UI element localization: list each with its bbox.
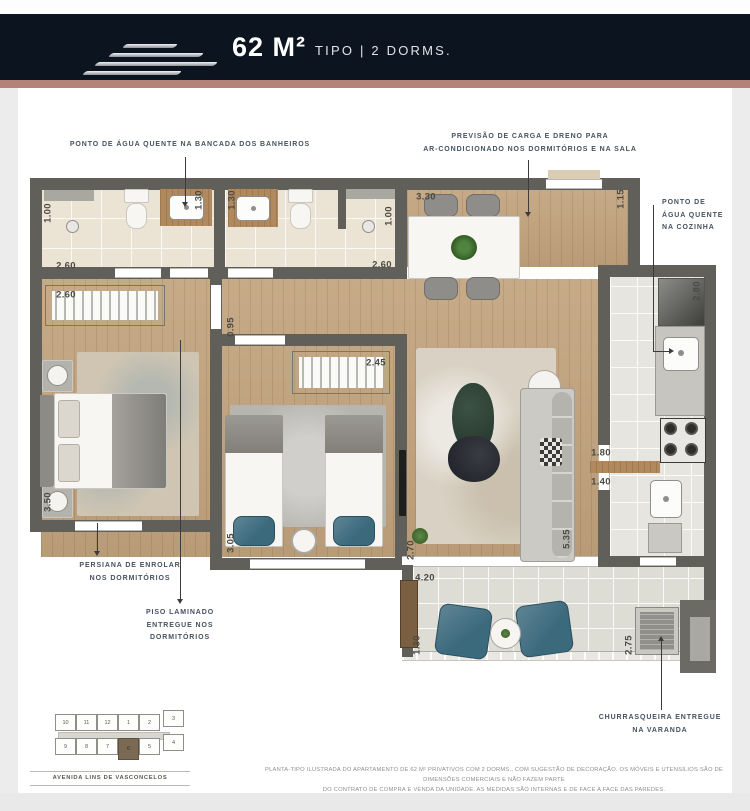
top-white-strip [0, 0, 750, 14]
stove-burner-icon [685, 443, 698, 456]
dining-chair [466, 194, 500, 217]
accent-divider [0, 80, 750, 88]
annotation-line: PONTO DE [662, 197, 742, 210]
site-unit-highlighted: 6 [118, 738, 139, 760]
dim-label: 2.45 [366, 358, 386, 369]
bath1-toilet-tank [124, 189, 149, 203]
tv-panel [399, 450, 406, 516]
leader-arrow [94, 551, 100, 556]
leader-arrow [177, 599, 183, 604]
logo-line-icon [122, 44, 178, 48]
plan-type-label: TIPO | 2 DORMS. [315, 37, 452, 58]
left-gutter [0, 88, 18, 811]
annotation-barbecue: CHURRASQUEIRA ENTREGUE NA VARANDA [570, 712, 750, 737]
leader-blinds [97, 523, 98, 552]
leader-barbecue [661, 641, 662, 710]
site-unit: 2 [139, 714, 160, 731]
dim-label: 1.30 [194, 190, 205, 210]
dim-label: 3.05 [226, 533, 237, 553]
washing-machine [648, 523, 682, 553]
master-pillow [58, 400, 80, 438]
street-line [30, 785, 190, 786]
dim-label: 2.60 [56, 261, 76, 272]
entry-door-opening [546, 179, 602, 189]
site-key-plan: 10 11 12 1 2 3 9 8 7 6 5 4 AVENIDA LINS … [30, 700, 190, 792]
annotation-line: DORMITÓRIOS [105, 632, 255, 645]
bottom-gutter [0, 793, 750, 811]
leader-arrow [669, 348, 674, 354]
site-unit: 7 [97, 738, 118, 755]
bath1-shower-glass [44, 190, 94, 201]
dining-chair [424, 277, 458, 300]
logo-line-icon [94, 62, 218, 66]
annotation-line: NA VARANDA [570, 725, 750, 738]
logo-line-icon [82, 71, 182, 75]
annotation-line: ÁGUA QUENTE [662, 210, 742, 223]
stove-burner-icon [664, 422, 677, 435]
stove-burner-icon [685, 422, 698, 435]
bath1-toilet [126, 203, 147, 229]
dim-label: 1.00 [384, 206, 395, 226]
dining-plant [451, 235, 477, 260]
bedroom2-window [250, 559, 365, 569]
site-unit: 4 [163, 734, 184, 751]
dim-label: 1.00 [43, 203, 54, 223]
wall-bath2-right [395, 178, 407, 267]
dim-label: 1.30 [412, 635, 423, 655]
varanda-plant [501, 629, 510, 638]
bedroom2-bed-blanket [325, 415, 383, 453]
annotation-ac: PREVISÃO DE CARGA E DRENO PARA AR-CONDIC… [390, 131, 670, 156]
disclaimer-line: PLANTA-TIPO ILUSTRADA DO APARTAMENTO DE … [255, 765, 733, 785]
master-pillow [58, 444, 80, 482]
dim-label: 3.50 [43, 492, 54, 512]
dim-label: 2.70 [406, 540, 417, 560]
site-unit: 3 [163, 710, 184, 727]
site-unit: 11 [76, 714, 97, 731]
dim-label: 2.60 [56, 290, 76, 301]
leader-hot-water-bath [185, 157, 186, 203]
site-unit: 8 [76, 738, 97, 755]
dim-label: 1.30 [227, 190, 238, 210]
wall-kitchen-divider [598, 277, 610, 557]
wall-kitchen-top [598, 265, 716, 277]
dim-label: 4.20 [415, 573, 435, 584]
master-bed-blanket [112, 394, 166, 488]
leader-arrow [182, 202, 188, 207]
dim-label: 1.80 [591, 448, 611, 459]
bedroom2-foot-pouf [233, 516, 275, 546]
master-bed-headboard [40, 395, 54, 487]
annotation-hot-water-kitchen: PONTO DE ÁGUA QUENTE NA COZINHA [662, 197, 742, 235]
dim-label: 5.35 [562, 529, 573, 549]
bath2-faucet [251, 206, 256, 211]
pass-through-counter [590, 461, 660, 473]
bath2-toilet-tank [288, 189, 313, 203]
wall-dining-right [628, 178, 640, 277]
barbecue-grill [636, 608, 678, 654]
bedroom2-foot-pouf [333, 516, 375, 546]
dim-label: 0.95 [226, 317, 237, 337]
plan-area-value: 62 M² [232, 32, 306, 63]
site-unit: 9 [55, 738, 76, 755]
laundry-faucet [663, 496, 669, 502]
bath2-door-opening [228, 268, 273, 278]
wall-baths-bottom [30, 267, 407, 279]
annotation-line: PISO LAMINADO [105, 607, 255, 620]
wall-bath-divider [214, 178, 225, 267]
disclaimer: PLANTA-TIPO ILUSTRADA DO APARTAMENTO DE … [255, 765, 733, 795]
master-lamp-icon [47, 365, 68, 386]
bath1-shower-icon [66, 220, 79, 233]
site-unit: 12 [97, 714, 118, 731]
logo-line-icon [108, 53, 204, 57]
wall-shower-stub [338, 183, 346, 229]
bath2-shower-glass [346, 189, 395, 199]
leader-ac [528, 160, 529, 213]
entry-doormat [548, 170, 600, 179]
dim-label: 2.75 [624, 635, 635, 655]
annotation-hot-water-bath: PONTO DE ÁGUA QUENTE NA BANCADA DOS BANH… [50, 139, 330, 152]
site-unit: 1 [118, 714, 139, 731]
leader-arrow [658, 636, 664, 641]
kitchen-stove [660, 418, 706, 463]
annotation-line: PERSIANA DE ENROLAR [40, 560, 220, 573]
leader-hot-water-kitchen-h [653, 351, 670, 352]
annotation-line: CHURRASQUEIRA ENTREGUE [570, 712, 750, 725]
stove-burner-icon [664, 443, 677, 456]
dining-chair [466, 277, 500, 300]
service-door-opening [640, 557, 676, 566]
master-window [75, 521, 142, 531]
service-shaft-inner [690, 617, 710, 661]
street-line [30, 771, 190, 772]
kitchen-faucet [678, 350, 684, 356]
dim-label: 2.80 [692, 281, 703, 301]
annotation-line: NA COZINHA [662, 222, 742, 235]
coffee-table-dark [448, 436, 500, 482]
annotation-blinds: PERSIANA DE ENROLAR NOS DORMITÓRIOS [40, 560, 220, 585]
street-label: AVENIDA LINS DE VASCONCELOS [30, 775, 190, 781]
annotation-line: ENTREGUE NOS [105, 620, 255, 633]
dim-label: 1.15 [616, 189, 627, 209]
leader-hot-water-kitchen-v [653, 205, 654, 352]
bath2-toilet [290, 203, 311, 229]
annotation-line: PONTO DE ÁGUA QUENTE NA BANCADA DOS BANH… [50, 139, 330, 152]
annotation-line: AR-CONDICIONADO NOS DORMITÓRIOS E NA SAL… [390, 144, 670, 157]
annotation-line: PREVISÃO DE CARGA E DRENO PARA [390, 131, 670, 144]
bedroom2-door-opening [235, 335, 285, 345]
varanda-armchair [515, 600, 575, 659]
bath1-door-opening [115, 268, 161, 278]
bedroom2-round-ottoman [291, 528, 317, 554]
bedroom2-bed-blanket [225, 415, 283, 453]
dim-label: 2.60 [372, 260, 392, 271]
annotation-line: NOS DORMITÓRIOS [40, 573, 220, 586]
sofa-checkered-pillow [540, 438, 562, 466]
annotation-laminate: PISO LAMINADO ENTREGUE NOS DORMITÓRIOS [105, 607, 255, 645]
header-bar: 62 M² TIPO | 2 DORMS. [0, 14, 750, 80]
master-door-opening [170, 268, 208, 278]
bath2-shower-icon [362, 220, 375, 233]
dim-label: 3.30 [416, 192, 436, 203]
brand-logo [86, 40, 221, 80]
dim-label: 1.40 [591, 477, 611, 488]
leader-arrow [525, 212, 531, 217]
site-unit: 10 [55, 714, 76, 731]
disclaimer-line: DO CONTRATO DE COMPRA E VENDA DA UNIDADE… [255, 785, 733, 795]
site-unit: 5 [139, 738, 160, 755]
plan-title: 62 M² TIPO | 2 DORMS. [232, 14, 452, 80]
varanda-armchair [434, 603, 494, 661]
master-closet-pass [211, 285, 221, 329]
